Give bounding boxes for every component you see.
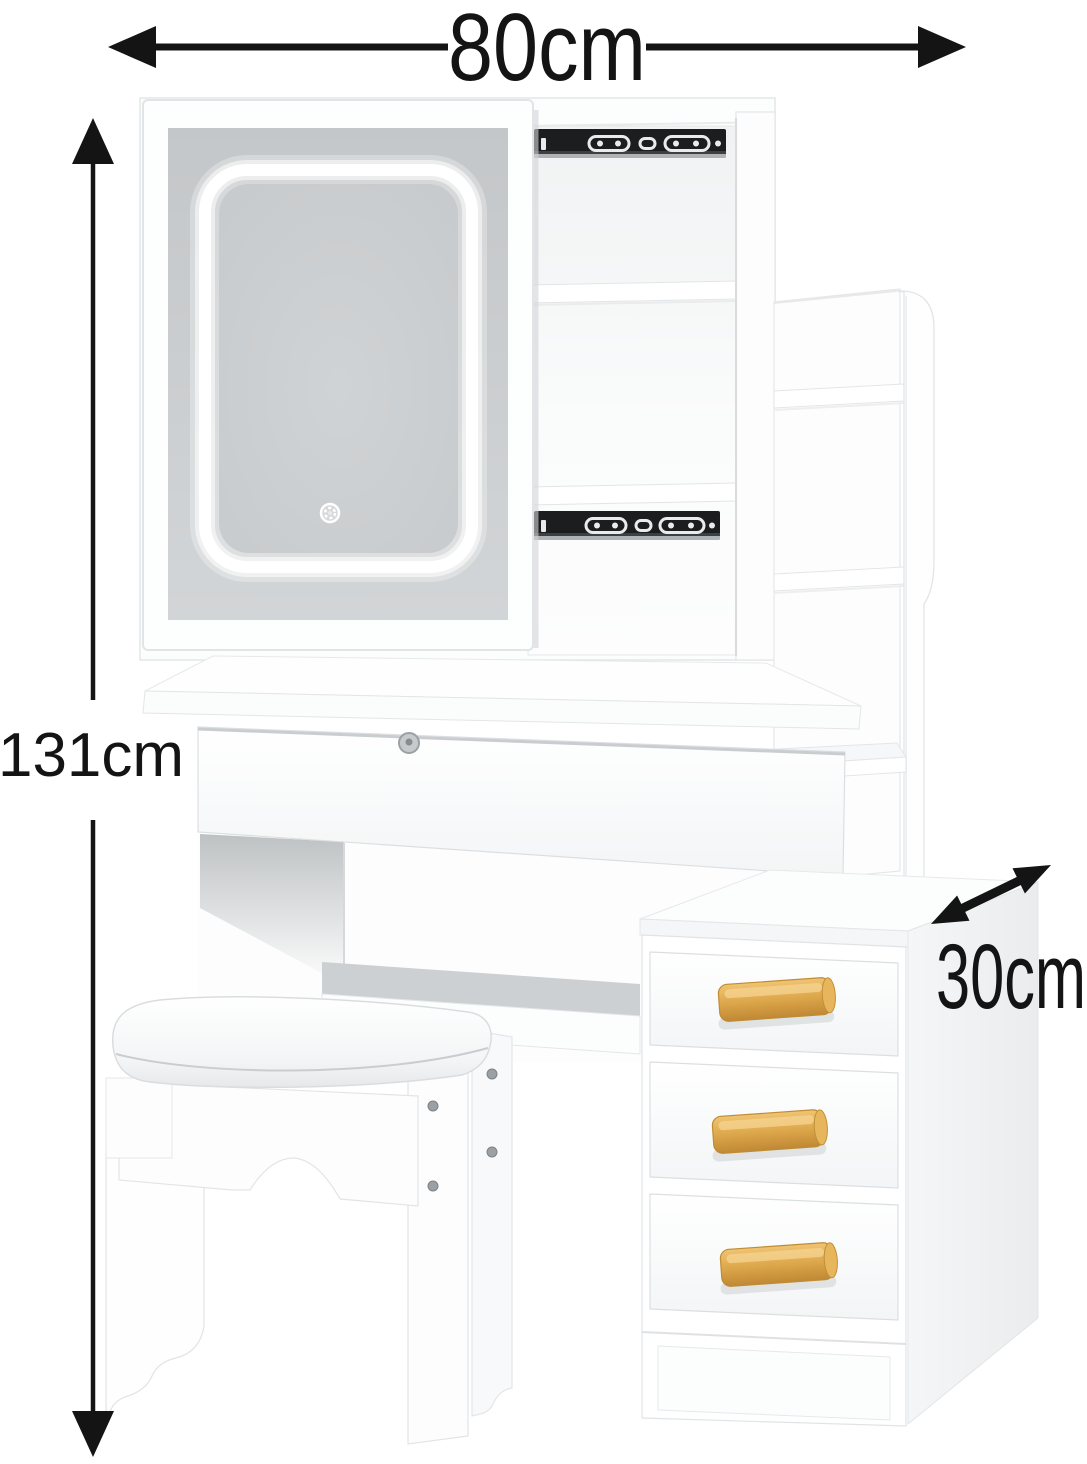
arrow-left-icon <box>108 26 156 68</box>
stool-leg-left-upper <box>106 1078 172 1158</box>
hutch-right-panel <box>736 112 775 660</box>
wooden-handle <box>718 1242 839 1295</box>
mirror-glass-inner <box>219 184 458 553</box>
rail-notch <box>541 520 546 532</box>
screw <box>428 1181 438 1191</box>
cabinet-base-inset <box>658 1346 890 1420</box>
arrow-down-icon <box>72 1411 114 1457</box>
width-dimension: 80cm <box>108 0 966 101</box>
arrow-right-icon <box>918 26 966 68</box>
stool-leg-left <box>106 1148 204 1412</box>
height-dimension-label: 131cm <box>0 721 184 790</box>
cubby-shelf <box>528 483 736 505</box>
rail-rivet <box>612 523 618 529</box>
rail-rivet <box>715 141 721 147</box>
rail-rivet <box>688 523 694 529</box>
stool-cushion <box>113 997 491 1088</box>
drawer-slide-rail-middle <box>534 511 720 540</box>
drawer-lock <box>399 733 419 753</box>
rail-metal-edge <box>534 536 720 540</box>
depth-dimension-label: 30cm <box>936 926 1086 1028</box>
drawer-slide-rail-top <box>534 129 726 158</box>
touch-sensor-icon <box>321 504 339 522</box>
rail-metal-edge <box>534 154 726 158</box>
stool-leg-rear-right <box>472 1030 512 1416</box>
screw <box>487 1147 497 1157</box>
product-dimension-diagram: 80cm 131cm 30cm <box>0 0 1087 1464</box>
rail-rivet <box>693 141 699 147</box>
rail-notch <box>541 138 546 150</box>
rail-rivet <box>597 141 603 147</box>
wooden-handle <box>716 977 837 1030</box>
rail-rivet <box>673 141 679 147</box>
hutch-cubby-interior <box>528 126 736 655</box>
led-mirror <box>143 100 536 650</box>
rail-rivet <box>594 523 600 529</box>
diagram-canvas: 80cm 131cm 30cm <box>0 0 1087 1464</box>
rail-rivet <box>668 523 674 529</box>
rail-rivet <box>615 141 621 147</box>
upholstered-stool <box>106 997 512 1444</box>
width-dimension-label: 80cm <box>448 0 646 101</box>
rail-rivet <box>709 523 715 529</box>
cubby-shelf <box>528 281 736 303</box>
wooden-handle <box>710 1109 829 1162</box>
screw <box>428 1101 438 1111</box>
screw <box>487 1069 497 1079</box>
